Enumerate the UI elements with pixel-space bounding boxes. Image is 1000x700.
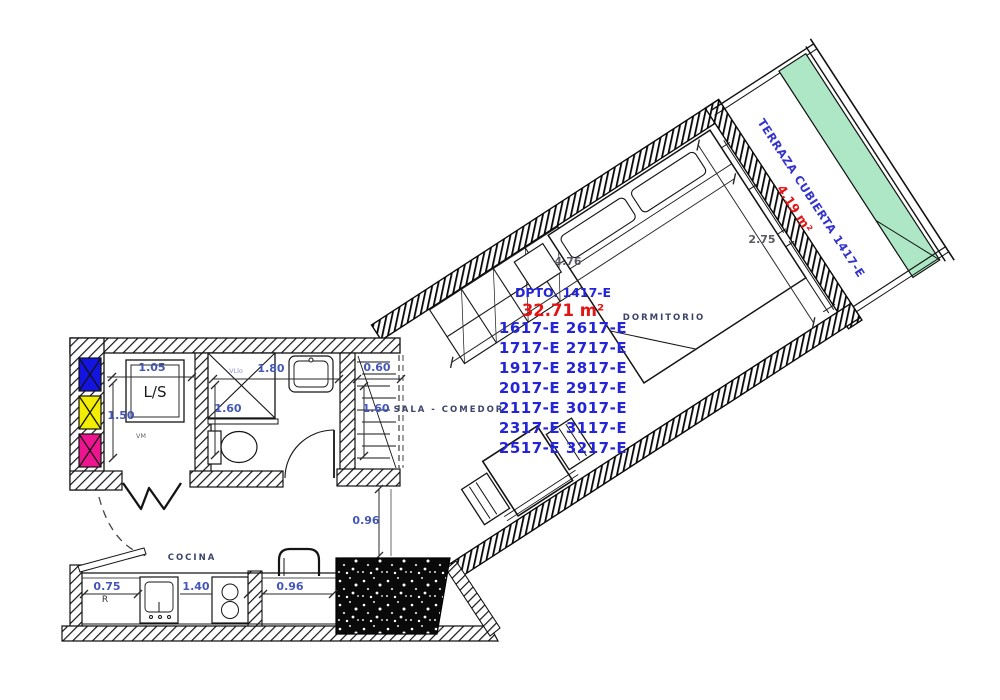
dim-bedroom-depth: 2.75 [748, 233, 775, 246]
dim-shower-width: 1.80 [257, 362, 284, 375]
unit-row: 2117-E 3017-E [499, 399, 627, 417]
wall-bath-closet [340, 353, 355, 473]
dim-kitchen-right: 0.96 [276, 580, 303, 593]
kitchen-sink [140, 577, 178, 623]
vm-note: VM [136, 432, 146, 440]
unit-row: 2317-E 3117-E [499, 419, 627, 437]
dim-kitchen-counter: 1.40 [182, 580, 209, 593]
dpto-title: DPTO. 1417-E [515, 285, 611, 300]
dim-ls-width: 1.05 [138, 361, 165, 374]
dpto-area: 32.71 m² [522, 301, 604, 320]
stove [212, 577, 248, 623]
wall-counter-stub [248, 571, 262, 626]
r-note: R [102, 595, 108, 605]
laundry-label: L/S [144, 383, 167, 401]
dim-ls-depth: 1.50 [107, 409, 134, 422]
washbasin [289, 356, 333, 392]
wall-kitchen-left [70, 565, 82, 627]
sala-comedor-label: SALA - COMEDOR [394, 405, 505, 415]
bath-partition [208, 419, 278, 424]
unit-row: 2517-E 3217-E [499, 439, 627, 457]
unit-row: 1917-E 2817-E [499, 359, 627, 377]
dim-closet-run: 4.76 [554, 255, 581, 268]
wall-bottom-ls [70, 471, 122, 490]
floor-plan: 4.19 m² TERRAZA CUBIERTA 1417-E [0, 0, 1000, 700]
wall-bottom-closet [337, 469, 400, 486]
wall-bottom-bath [190, 471, 283, 487]
wall-top [70, 338, 400, 353]
vllo-note: VLlo [229, 367, 243, 375]
dim-closet-depth: 1.60 [362, 402, 389, 415]
dim-kitchen-left: 0.75 [93, 580, 120, 593]
structural-column [336, 558, 450, 634]
dim-bath-depth: 1.60 [214, 402, 241, 415]
dormitorio-label: DORMITORIO [623, 313, 705, 323]
unit-row: 1617-E 2617-E [499, 319, 627, 337]
unit-row: 2017-E 2917-E [499, 379, 627, 397]
unit-row: 1717-E 2717-E [499, 339, 627, 357]
cocina-label: COCINA [168, 553, 217, 563]
dim-closet-width: 0.60 [363, 361, 390, 374]
utility-meters [79, 358, 101, 467]
dim-hall-width: 0.96 [352, 514, 379, 527]
